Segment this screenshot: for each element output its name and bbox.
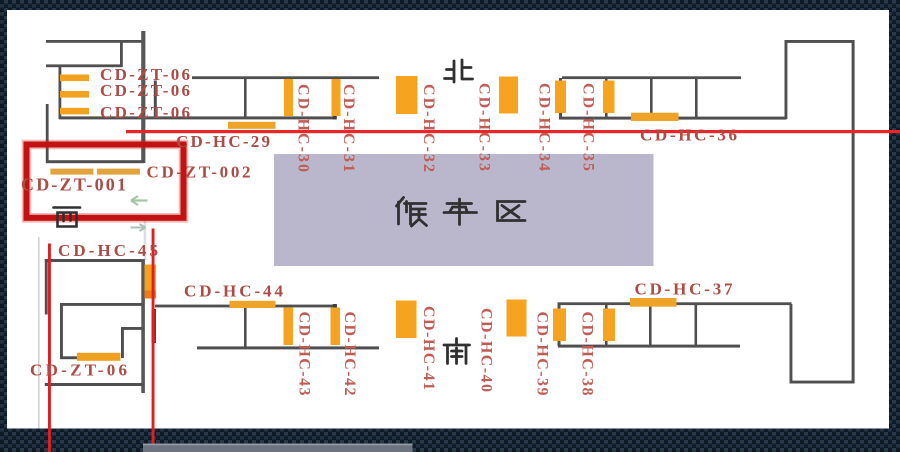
svg-text:CD-HC-39: CD-HC-39 — [534, 312, 551, 396]
svg-text:CD-ZT-001: CD-ZT-001 — [21, 175, 126, 195]
svg-text:CD-HC-42: CD-HC-42 — [341, 312, 358, 396]
svg-text:CD-HC-45: CD-HC-45 — [58, 241, 158, 260]
svg-text:CD-HC-34: CD-HC-34 — [536, 83, 553, 171]
svg-text:CD-HC-43: CD-HC-43 — [296, 312, 313, 396]
svg-text:CD-ZT-002: CD-ZT-002 — [147, 163, 251, 182]
svg-text:CD-HC-37: CD-HC-37 — [635, 280, 734, 299]
svg-text:CD-HC-31: CD-HC-31 — [340, 84, 357, 172]
svg-text:CD-HC-41: CD-HC-41 — [420, 306, 437, 390]
svg-text:CD-HC-36: CD-HC-36 — [640, 126, 737, 145]
svg-text:CD-HC-29: CD-HC-29 — [176, 132, 270, 151]
svg-text:CD-HC-35: CD-HC-35 — [580, 83, 597, 171]
svg-text:CD-HC-38: CD-HC-38 — [579, 312, 596, 396]
svg-text:CD-HC-40: CD-HC-40 — [478, 308, 495, 392]
svg-text:CD-HC-44: CD-HC-44 — [184, 282, 284, 301]
svg-text:CD-HC-32: CD-HC-32 — [420, 84, 437, 172]
svg-text:CD-HC-33: CD-HC-33 — [476, 83, 493, 171]
svg-text:CD-HC-30: CD-HC-30 — [295, 84, 312, 172]
